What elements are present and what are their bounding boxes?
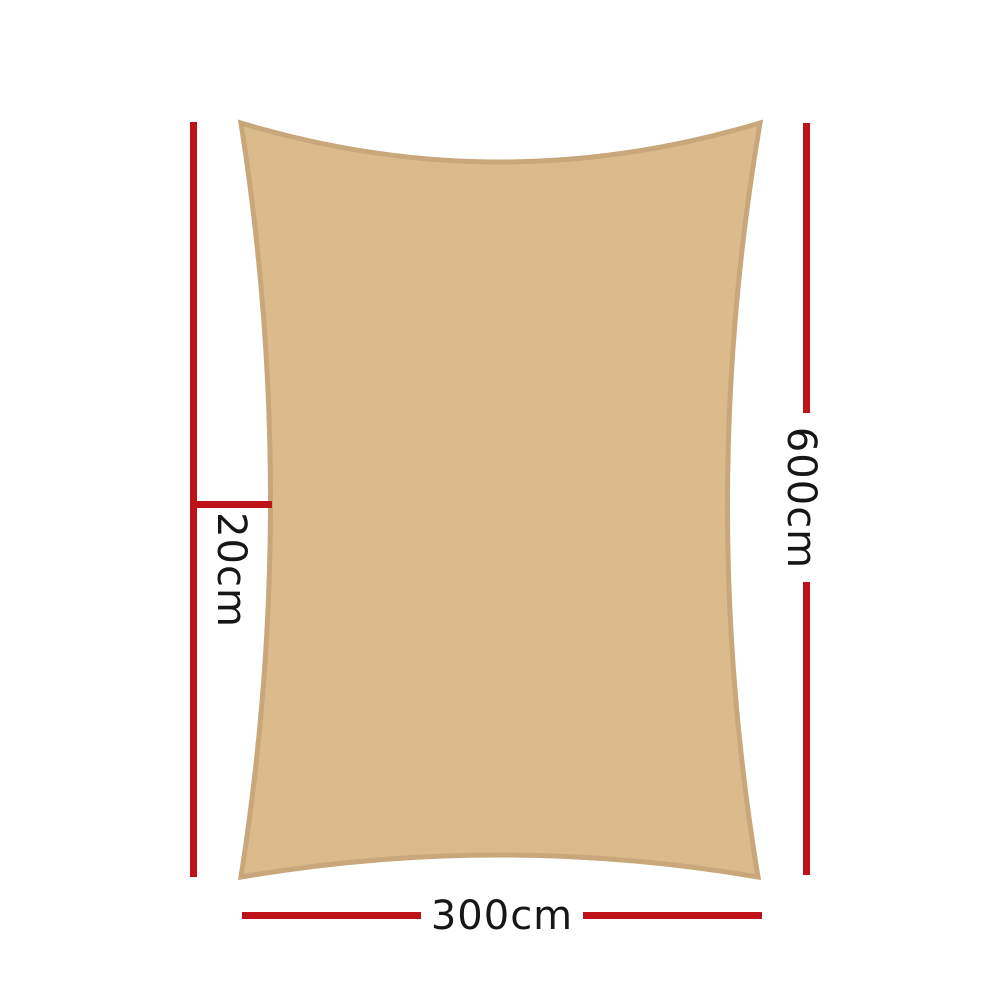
width-dimension-line-left xyxy=(242,912,421,919)
curve-depth-tick-line xyxy=(190,501,272,508)
height-dimension-label: 600cm xyxy=(781,427,821,569)
height-dimension-line-bottom xyxy=(803,582,810,875)
shade-sail-shape xyxy=(0,0,1000,1000)
product-dimension-diagram: 600cm 300cm 20cm xyxy=(0,0,1000,1000)
width-dimension-label: 300cm xyxy=(431,896,573,936)
height-dimension-line-top xyxy=(803,123,810,413)
left-reference-line xyxy=(190,122,197,877)
shade-sail-fabric xyxy=(241,123,760,877)
width-dimension-line-right xyxy=(583,912,762,919)
curve-depth-dimension-label: 20cm xyxy=(211,512,251,628)
